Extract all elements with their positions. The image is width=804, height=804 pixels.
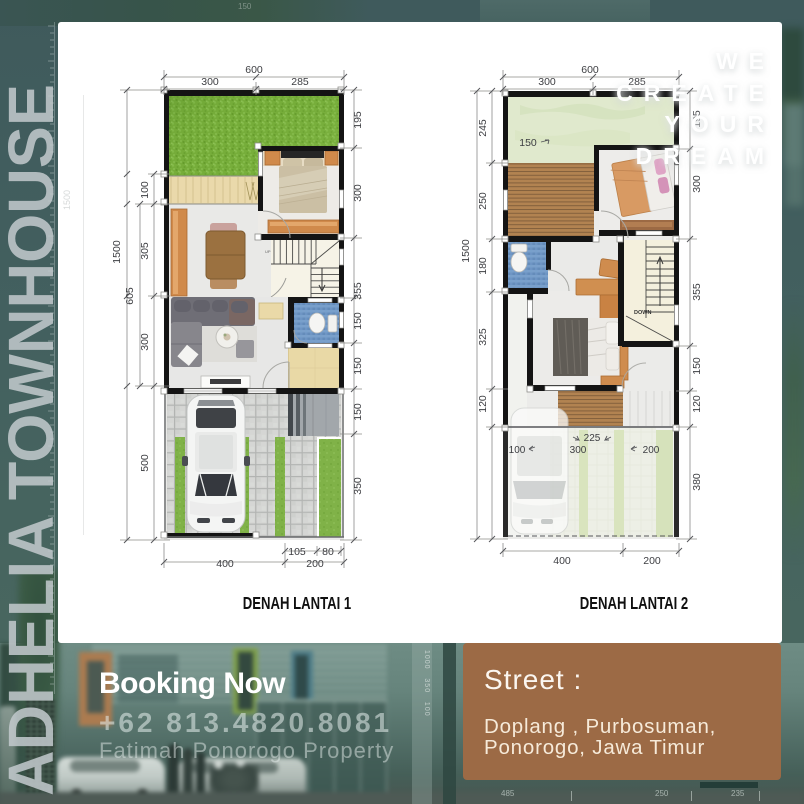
svg-text:355: 355 (691, 283, 703, 301)
svg-text:195: 195 (352, 111, 364, 129)
svg-text:325: 325 (477, 328, 489, 346)
svg-text:DENAH LANTAI 2: DENAH LANTAI 2 (580, 594, 689, 613)
svg-text:600: 600 (245, 64, 263, 76)
svg-text:120: 120 (477, 395, 489, 413)
svg-text:200: 200 (643, 555, 661, 567)
svg-text:350: 350 (352, 477, 364, 495)
svg-text:300: 300 (201, 76, 219, 88)
svg-text:300: 300 (139, 333, 151, 351)
svg-text:UP: UP (265, 249, 271, 254)
svg-text:380: 380 (691, 473, 703, 491)
svg-text:300: 300 (352, 184, 364, 202)
svg-text:355: 355 (352, 282, 364, 300)
svg-text:305: 305 (139, 242, 151, 260)
svg-text:300: 300 (570, 445, 587, 456)
svg-text:100: 100 (139, 181, 151, 199)
svg-text:285: 285 (291, 76, 309, 88)
svg-text:120: 120 (691, 395, 703, 413)
svg-text:150: 150 (352, 357, 364, 375)
svg-text:200: 200 (306, 558, 324, 570)
svg-text:1500: 1500 (111, 240, 123, 264)
svg-text:DENAH LANTAI 1: DENAH LANTAI 1 (243, 594, 352, 613)
svg-text:150: 150 (352, 312, 364, 330)
svg-text:DOWN: DOWN (634, 310, 651, 316)
svg-text:150: 150 (691, 357, 703, 375)
svg-text:ADHELIA TOWNHOUSE: ADHELIA TOWNHOUSE (0, 84, 67, 796)
svg-text:250: 250 (477, 192, 489, 210)
svg-text:400: 400 (553, 555, 571, 567)
svg-text:200: 200 (643, 445, 660, 456)
svg-text:400: 400 (216, 558, 234, 570)
svg-text:80: 80 (322, 546, 334, 558)
svg-text:150: 150 (352, 403, 364, 421)
svg-text:500: 500 (139, 454, 151, 472)
svg-text:605: 605 (124, 287, 136, 305)
svg-text:100: 100 (509, 445, 526, 456)
svg-text:180: 180 (477, 257, 489, 275)
svg-text:1500: 1500 (460, 239, 472, 263)
svg-text:225: 225 (584, 433, 601, 444)
svg-text:300: 300 (691, 175, 703, 193)
svg-text:105: 105 (288, 546, 306, 558)
